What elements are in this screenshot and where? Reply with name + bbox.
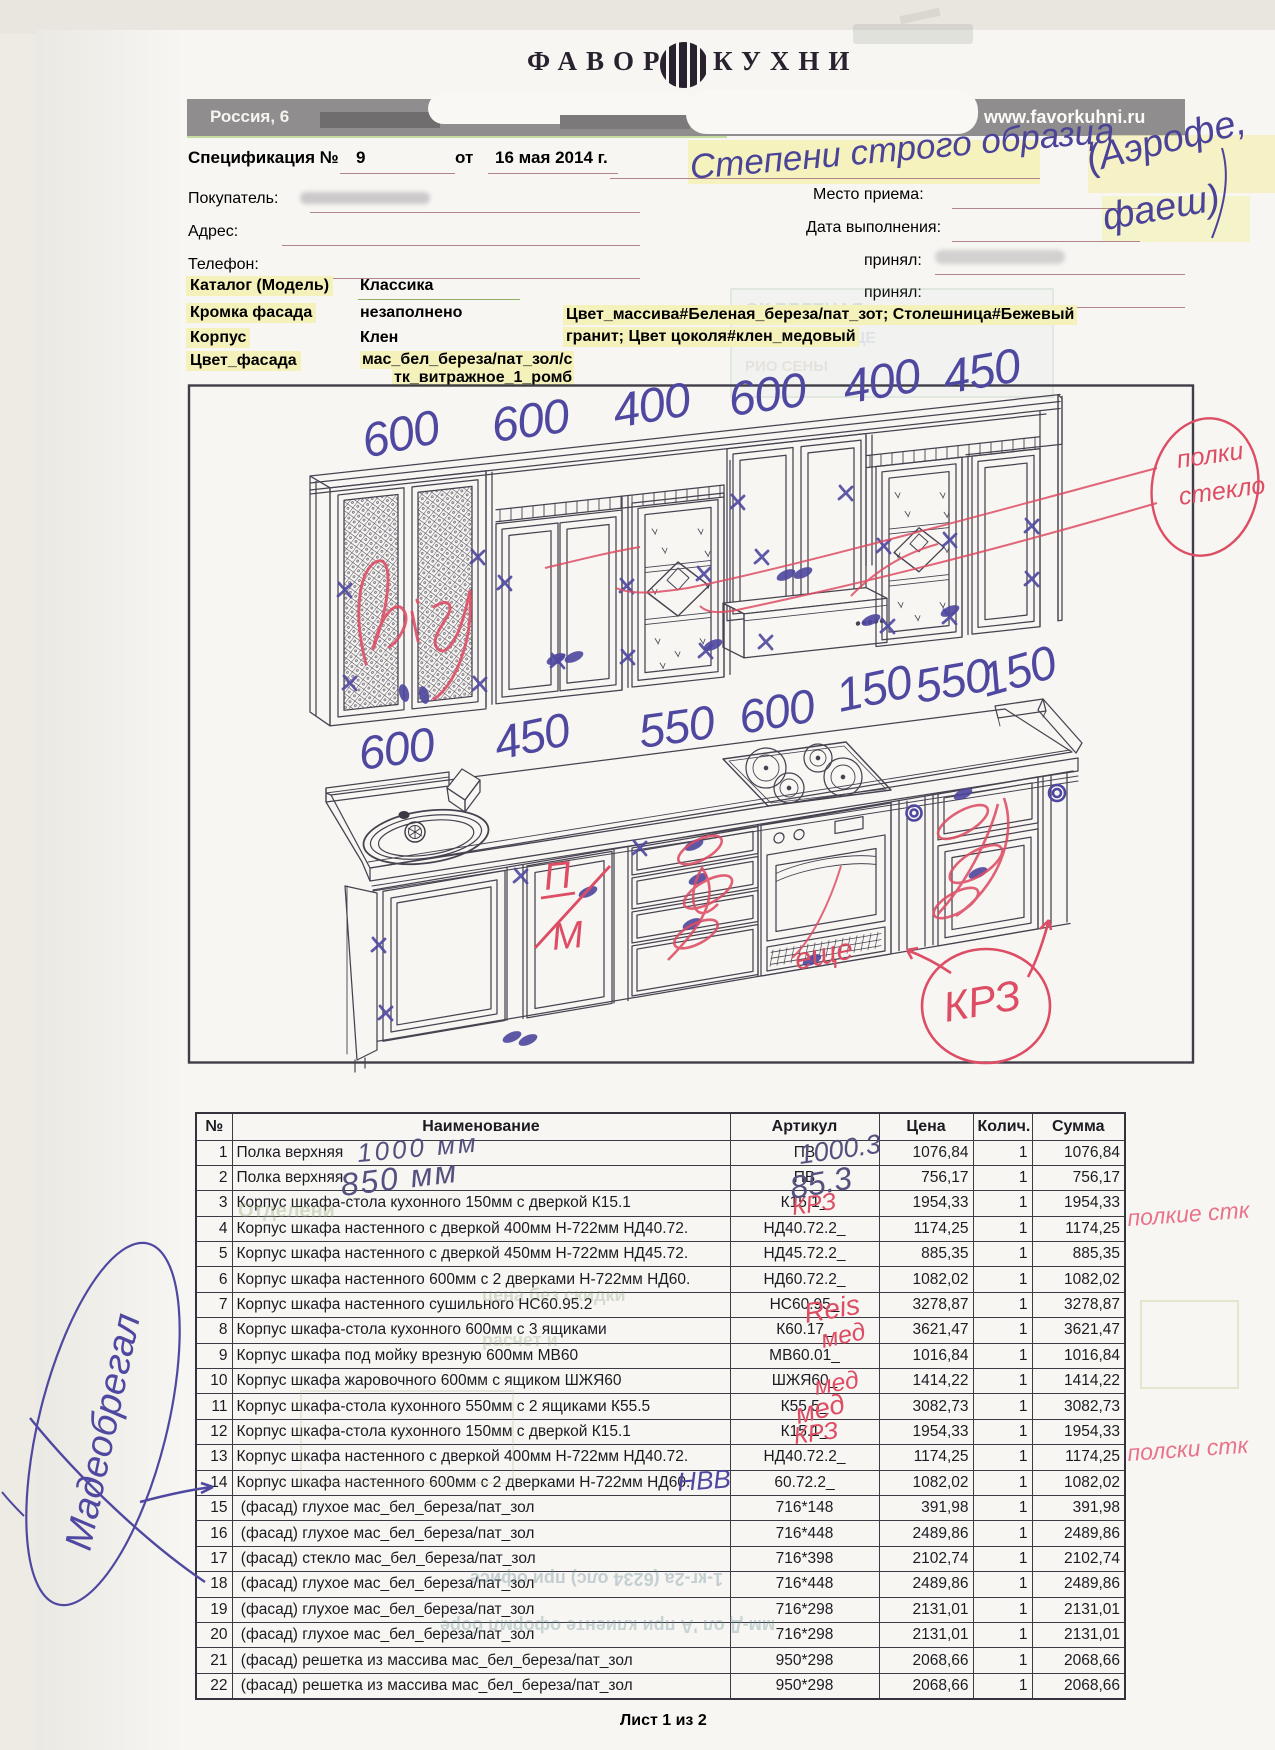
svg-text:стекло: стекло xyxy=(1177,471,1267,511)
svg-text:полски стк: полски стк xyxy=(1127,1432,1251,1466)
svg-text:полкие стк: полкие стк xyxy=(1127,1196,1252,1231)
svg-text:еще: еще xyxy=(792,932,856,977)
svg-text:полки: полки xyxy=(1175,437,1245,474)
svg-text:М: М xyxy=(550,914,586,959)
svg-text:КРЗ: КРЗ xyxy=(792,1417,840,1450)
svg-text:НВВ: НВВ xyxy=(676,1463,731,1497)
svg-text:П: П xyxy=(542,854,574,899)
svg-text:150: 150 xyxy=(974,635,1062,707)
svg-text:600: 600 xyxy=(735,678,819,743)
svg-text:150: 150 xyxy=(831,654,917,722)
svg-text:600: 600 xyxy=(355,717,438,780)
svg-text:450: 450 xyxy=(489,702,575,770)
svg-text:Мадеобрегал: Мадеобрегал xyxy=(58,1310,149,1554)
svg-text:550: 550 xyxy=(635,695,718,758)
svg-text:КРЗ: КРЗ xyxy=(790,1188,838,1221)
svg-text:600: 600 xyxy=(725,363,810,426)
svg-text:фаеш): фаеш) xyxy=(1099,177,1223,239)
svg-text:Степени строго образца: Степени строго образца xyxy=(688,111,1116,187)
svg-text:850 мм: 850 мм xyxy=(338,1153,460,1203)
svg-text:600: 600 xyxy=(488,389,573,452)
svg-text:600: 600 xyxy=(357,401,445,469)
svg-text:400: 400 xyxy=(609,373,695,439)
svg-text:КРЗ: КРЗ xyxy=(939,971,1024,1031)
svg-text:400: 400 xyxy=(839,349,925,415)
svg-text:450: 450 xyxy=(939,339,1025,405)
